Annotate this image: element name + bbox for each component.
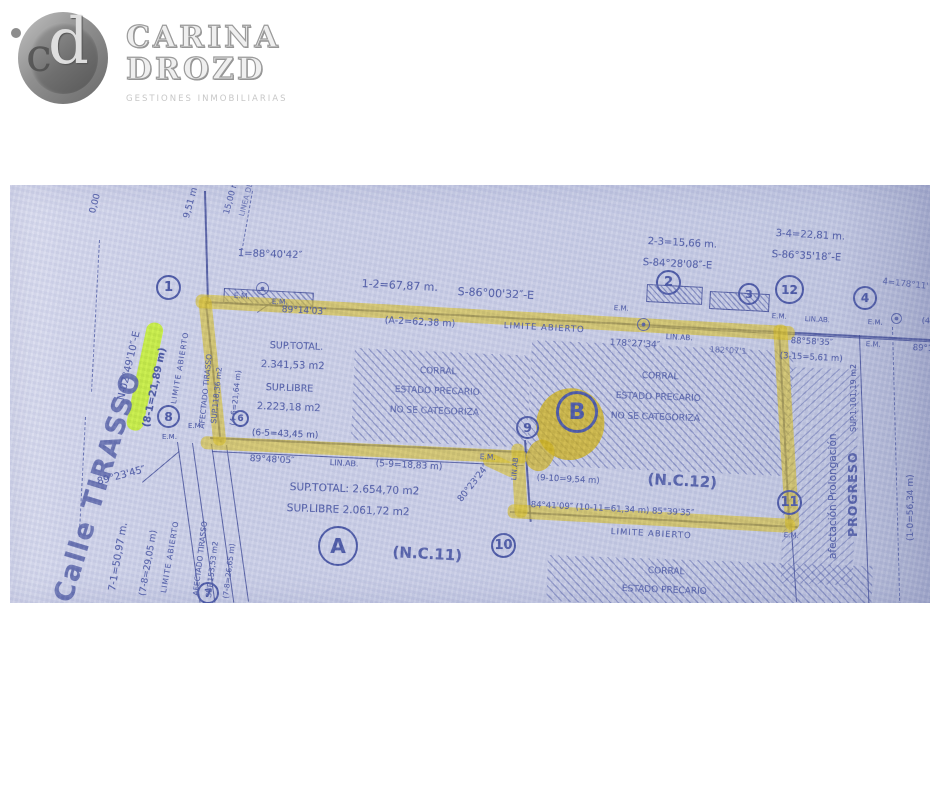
plan-label: (1-0=56,34 m) <box>906 474 916 541</box>
plan-label: 1̂=88°40'42″ <box>238 248 303 261</box>
plan-label: E.M. <box>162 433 177 441</box>
plan-label: E.M. <box>480 452 496 462</box>
plan-label: E.M. <box>784 531 799 540</box>
plan-label: E.M. <box>868 318 883 327</box>
plan-label: (A-2=62,38 m) <box>384 315 455 330</box>
vertex-badge-9: 9 <box>516 416 539 439</box>
plan-label: E.M. <box>772 312 787 321</box>
plan-label: S-86°35'18″-E <box>771 249 841 264</box>
plan-label: LIN.AB. <box>330 458 359 468</box>
plan-label: (7-8=26,65 m) <box>221 543 237 599</box>
vertex-badge-12: 12 <box>775 275 804 304</box>
parcel-b-sup-total-value: 2.341,53 m2 <box>261 359 325 372</box>
plan-label: LIMITE ABIERTO <box>159 520 181 594</box>
plan-label: 80°23'24″ <box>456 463 491 504</box>
vertex-badge-4: 4 <box>853 286 877 310</box>
plan-label: 0,00 <box>88 193 103 215</box>
plan-label: SUP.1.101,19 m2 <box>849 364 858 432</box>
plan-label: 1-2=67,87 m. <box>361 277 438 294</box>
plan-label: LINEA DE <box>237 185 255 217</box>
plan-label: E.M. <box>614 304 629 313</box>
progreso-street-label: PROGRESO <box>845 452 860 537</box>
plan-label: 182°07'1 <box>710 345 747 356</box>
logo-monogram-icon: c d <box>12 8 114 110</box>
plan-line <box>859 335 870 603</box>
parcel-b-sup-libre-value: 2.223,18 m2 <box>257 401 321 414</box>
logo-letter-d: d <box>48 10 89 74</box>
parcel-a-sup-total-value: SUP.TOTAL: 2.654,70 m2 <box>290 481 420 498</box>
plan-label: 4̂=178°11' <box>882 277 929 292</box>
plan-label: 2-3=15,66 m. <box>647 236 717 251</box>
vertex-badge-11: 11 <box>777 490 802 515</box>
parcel-a-badge: A <box>318 526 358 566</box>
logo: c d CARINA DROZD GESTIONES INMOBILIARIAS <box>12 8 287 110</box>
plan-label: 9,51 m <box>182 186 200 219</box>
plan-label: E.M. <box>234 291 250 301</box>
vertex-badge-2: 2 <box>656 270 681 295</box>
parcel-b-nc-label: (N.C.12) <box>647 470 717 492</box>
vertex-badge-10: 10 <box>491 533 516 558</box>
plan-label: CORRAL <box>648 566 685 577</box>
logo-text: CARINA DROZD GESTIONES INMOBILIARIAS <box>126 8 287 104</box>
parcel-b-badge: B <box>556 391 598 433</box>
plan-label: SUP.LIBRE <box>266 382 314 395</box>
logo-name-line2: DROZD <box>126 54 287 86</box>
plan-label: 88°58'35″ <box>790 336 833 348</box>
plan-label: CORRAL <box>642 371 679 382</box>
plan-label: 7-1=50,97 m. <box>107 522 130 592</box>
plan-label: E.M. <box>188 422 203 430</box>
plan-label: 89°14'03″ <box>281 305 326 317</box>
plan-label: LIMITE ABIERTO <box>610 527 691 541</box>
plan-label: 89°48'05″ <box>249 454 294 466</box>
vertex-point-marker <box>637 318 650 331</box>
logo-tagline: GESTIONES INMOBILIARIAS <box>126 94 287 104</box>
plan-label: 3-4=22,81 m. <box>775 228 845 243</box>
vertex-badge-8: 8 <box>157 405 180 428</box>
hatch-region <box>351 348 531 448</box>
plan-label: CORRAL <box>420 366 457 377</box>
plan-label: S-86°00'32″-E <box>457 285 534 302</box>
affectation-label: afectación Prolongación <box>827 433 839 559</box>
parcel-a-nc-label: (N.C.11) <box>392 543 462 565</box>
plan-line <box>142 451 179 483</box>
plan-label: (7-8=29,05 m) <box>138 529 159 596</box>
survey-plan-scan: 12312486910117AB0,009,51 m15,00 mLINEA D… <box>10 185 930 603</box>
plan-label: LIN.AB. <box>666 332 693 342</box>
logo-name-line1: CARINA <box>126 22 287 54</box>
dashed-plan-line <box>91 240 100 392</box>
plan-label: 89°1 <box>912 343 930 354</box>
logo-dot <box>11 28 21 38</box>
plan-label: E.M. <box>866 340 881 349</box>
plan-label: SUP.TOTAL. <box>270 340 324 353</box>
plan-label: (5-9=18,83 m) <box>375 459 442 472</box>
plan-label: LIMITE ABIERTO <box>169 331 191 405</box>
vertex-badge-1: 1 <box>156 275 181 300</box>
parcel-a-sup-libre-value: SUP.LIBRE 2.061,72 m2 <box>287 502 410 518</box>
dashed-plan-line <box>892 327 900 603</box>
vertex-point-marker <box>256 282 269 295</box>
plan-label: (4- <box>922 316 930 326</box>
plan-line <box>204 191 209 304</box>
vertex-badge-3: 3 <box>738 283 760 305</box>
plan-label: S-84°28'08″-E <box>642 257 712 272</box>
vertex-point-marker <box>891 313 902 324</box>
plan-label: (9-10=9,54 m) <box>536 473 599 486</box>
plan-label: LIN.AB. <box>805 315 831 324</box>
